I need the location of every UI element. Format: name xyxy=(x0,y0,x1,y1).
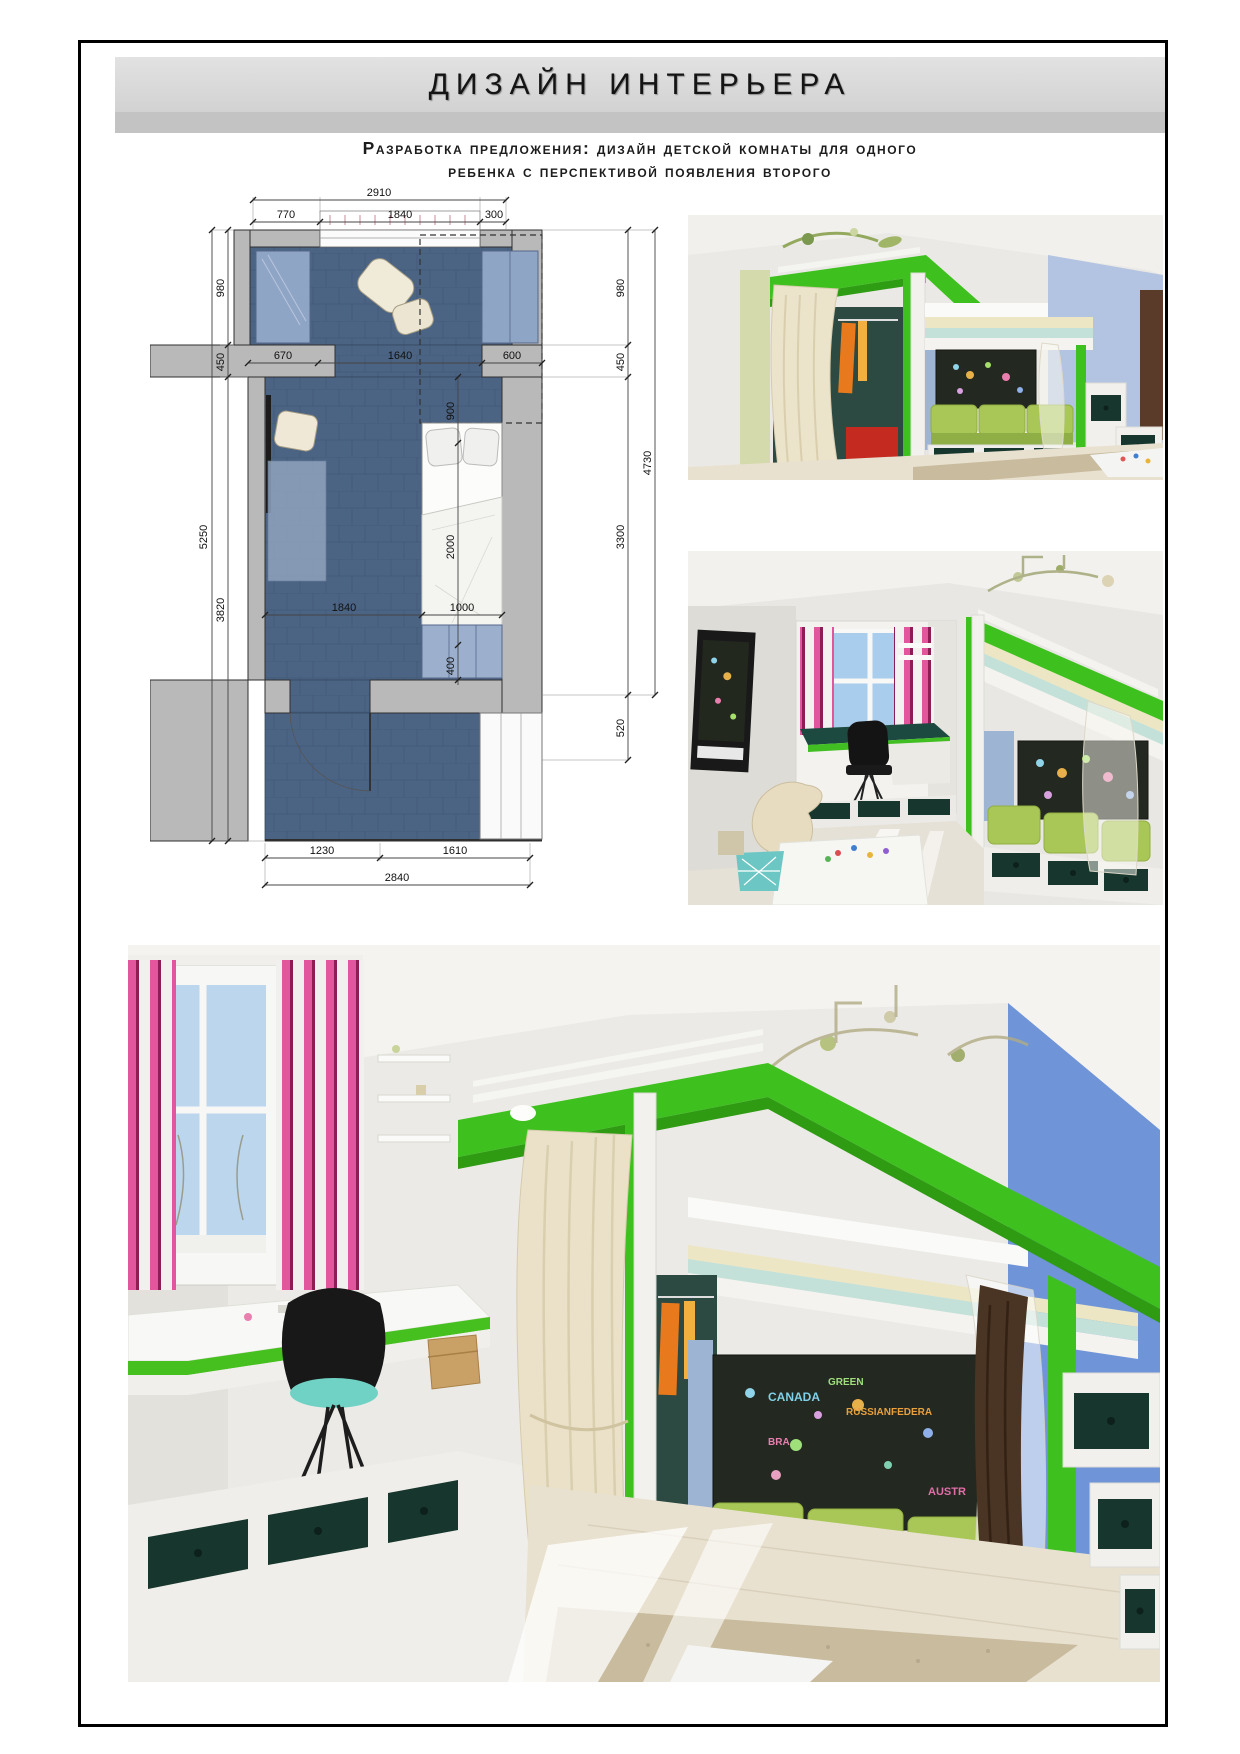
dim-label: 770 xyxy=(277,209,295,221)
toy-basket xyxy=(736,851,784,891)
plan-desk-chair xyxy=(273,410,319,452)
subtitle-line-2: ребенка с перспективой появления второго xyxy=(115,160,1165,183)
dim-label: 400 xyxy=(445,657,457,675)
map-word: GREEN xyxy=(828,1377,864,1388)
dim-label: 2840 xyxy=(385,872,409,884)
render-photo-middle xyxy=(688,551,1163,905)
dim-label: 1230 xyxy=(310,845,334,857)
plan-closet-right xyxy=(482,251,538,343)
plan-rug xyxy=(268,461,326,581)
dim-label: 600 xyxy=(503,350,521,362)
render-photo-large: CANADA GREEN RUSSIANFEDERA BRA AUSTR xyxy=(128,945,1160,1682)
plan-bed xyxy=(422,423,502,625)
subtitle-line-1: Разработка предложения: дизайн детской к… xyxy=(115,137,1165,160)
map-word: RUSSIANFEDERA xyxy=(846,1407,932,1418)
plan-closet-left xyxy=(256,251,310,343)
dim-label: 4730 xyxy=(642,451,654,475)
bird-toy xyxy=(510,1105,536,1121)
world-map-board xyxy=(936,350,1036,408)
map-word: AUSTR xyxy=(928,1486,966,1498)
dim-label: 1640 xyxy=(388,350,412,362)
dim-label: 1840 xyxy=(332,602,356,614)
banner-divider xyxy=(115,112,1165,133)
white-post xyxy=(911,273,925,467)
map-word: BRA xyxy=(768,1437,790,1448)
dim-label: 450 xyxy=(215,353,227,371)
dim-label: 2910 xyxy=(367,187,391,199)
dim-label: 980 xyxy=(615,279,627,297)
dim-label: 1610 xyxy=(443,845,467,857)
sheer-curtain xyxy=(1039,343,1064,450)
subtitle: Разработка предложения: дизайн детской к… xyxy=(115,137,1165,183)
presentation-sheet: ДИЗАЙН ИНТЕРЬЕРА Разработка предложения:… xyxy=(0,0,1240,1754)
plan-bed-wardrobe xyxy=(422,625,502,678)
dim-label: 1840 xyxy=(388,209,412,221)
wardrobe-curtain xyxy=(771,285,838,467)
dim-label: 1000 xyxy=(450,602,474,614)
page-title: ДИЗАЙН ИНТЕРЬЕРА xyxy=(429,68,852,102)
title-banner: ДИЗАЙН ИНТЕРЬЕРА xyxy=(115,57,1165,112)
dim-label: 980 xyxy=(215,279,227,297)
dim-label: 3300 xyxy=(615,525,627,549)
dim-label: 5250 xyxy=(198,525,210,549)
dim-label: 900 xyxy=(445,402,457,420)
pink-curtain-right xyxy=(276,960,364,1290)
dim-label: 2000 xyxy=(445,535,457,559)
plan-storage-cupboard xyxy=(480,713,542,839)
floor-plan: 2910 770 1840 300 5250 980 450 3820 980 … xyxy=(150,185,680,895)
kids-table xyxy=(772,835,928,905)
pink-curtain-left xyxy=(128,960,176,1290)
dim-label: 3820 xyxy=(215,598,227,622)
render-photo-top xyxy=(688,215,1163,480)
dim-label: 300 xyxy=(485,209,503,221)
map-word: CANADA xyxy=(768,1390,820,1404)
dim-label: 520 xyxy=(615,719,627,737)
sheer-curtain xyxy=(1083,701,1138,875)
wall-panel xyxy=(740,270,770,467)
dim-label: 670 xyxy=(274,350,292,362)
wall-picture xyxy=(690,630,755,773)
window-niche xyxy=(796,621,956,813)
green-post xyxy=(903,275,911,467)
dim-label: 450 xyxy=(615,353,627,371)
planter xyxy=(718,831,744,855)
pink-curtain-left xyxy=(800,627,834,735)
cardboard-box xyxy=(428,1335,480,1389)
door xyxy=(1140,290,1163,440)
